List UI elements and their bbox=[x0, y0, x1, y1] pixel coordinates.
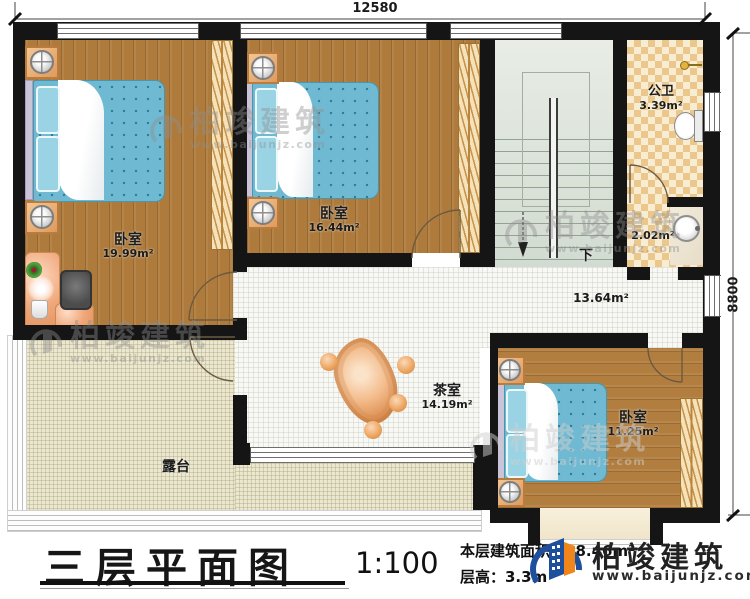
bedroom2-name: 卧室 bbox=[289, 206, 379, 222]
dimension-right: 8800 bbox=[727, 274, 742, 316]
watermark-logo-icon bbox=[30, 325, 64, 363]
door-arc-bathroom bbox=[630, 165, 668, 203]
door-arc-bedroom1 bbox=[189, 272, 237, 320]
watermark-url: www.baijunjz.com bbox=[70, 352, 210, 365]
tearoom-label: 茶室 14.19m² bbox=[402, 383, 492, 411]
watermark: 柏竣建筑www.baijunjz.com bbox=[30, 322, 210, 365]
door-arc-bedroom2 bbox=[412, 210, 460, 258]
watermark-name: 柏竣建筑 bbox=[510, 425, 650, 455]
bedroom1-area: 19.99m² bbox=[83, 248, 173, 260]
watermark-url: www.baijunjz.com bbox=[190, 138, 330, 151]
brand-url: www.baijunjz.com bbox=[592, 568, 750, 584]
hallway-label: 13.64m² bbox=[566, 292, 636, 304]
watermark-url: www.baijunjz.com bbox=[545, 242, 685, 255]
watermark-logo-icon bbox=[505, 215, 539, 253]
terrace-label: 露台 bbox=[141, 459, 211, 475]
watermark: 柏竣建筑www.baijunjz.com bbox=[150, 108, 330, 151]
brand-logo-icon bbox=[527, 530, 587, 594]
bathroom-label: 公卫 3.39m² bbox=[626, 84, 696, 112]
tearoom-name: 茶室 bbox=[402, 383, 492, 399]
floor-plan-canvas: 卧室 19.99m² 卧室 16.44m² 公卫 3.39m² 2.02m² 下… bbox=[0, 0, 750, 599]
watermark-name: 柏竣建筑 bbox=[190, 108, 330, 138]
watermark-name: 柏竣建筑 bbox=[545, 212, 685, 242]
watermark-logo-icon bbox=[470, 428, 504, 466]
title-scale: 1:100 bbox=[355, 546, 439, 580]
watermark-url: www.baijunjz.com bbox=[510, 455, 650, 468]
hallway-area: 13.64m² bbox=[566, 292, 636, 304]
watermark-logo-icon bbox=[150, 111, 184, 149]
watermark: 柏竣建筑www.baijunjz.com bbox=[505, 212, 685, 255]
bedroom1-name: 卧室 bbox=[83, 232, 173, 248]
terrace-name: 露台 bbox=[141, 459, 211, 475]
dimension-top: 12580 bbox=[340, 1, 410, 16]
tearoom-area: 14.19m² bbox=[402, 399, 492, 411]
bathroom-name: 公卫 bbox=[626, 84, 696, 100]
bedroom2-label: 卧室 16.44m² bbox=[289, 206, 379, 234]
watermark: 柏竣建筑www.baijunjz.com bbox=[470, 425, 650, 468]
bathroom-area: 3.39m² bbox=[626, 100, 696, 112]
bedroom1-label: 卧室 19.99m² bbox=[83, 232, 173, 260]
page-title: 三层平面图 bbox=[44, 534, 299, 594]
watermark-name: 柏竣建筑 bbox=[70, 322, 210, 352]
door-arc-bedroom3 bbox=[648, 348, 682, 382]
title-underline-thin bbox=[40, 588, 349, 589]
title-underline-thick bbox=[40, 581, 345, 585]
bedroom2-area: 16.44m² bbox=[289, 222, 379, 234]
